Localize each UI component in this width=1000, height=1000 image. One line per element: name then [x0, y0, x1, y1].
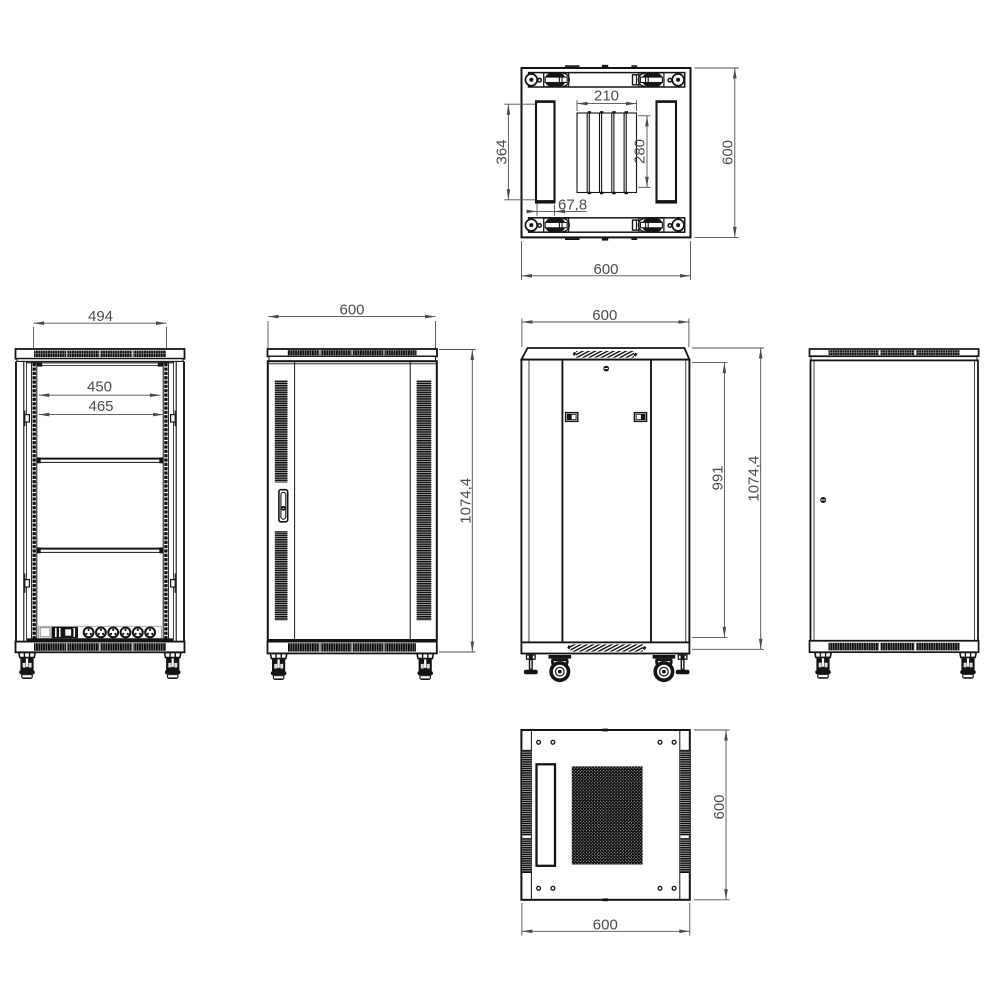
svg-text:465: 465	[88, 398, 113, 415]
svg-text:600: 600	[592, 307, 617, 324]
svg-text:600: 600	[593, 261, 618, 278]
svg-text:600: 600	[711, 794, 728, 819]
svg-text:280: 280	[632, 139, 649, 164]
svg-text:1074,4: 1074,4	[457, 478, 474, 524]
svg-text:494: 494	[88, 308, 113, 325]
svg-text:600: 600	[720, 140, 737, 165]
svg-text:210: 210	[594, 88, 619, 105]
svg-text:600: 600	[339, 301, 364, 318]
svg-text:364: 364	[493, 139, 510, 164]
svg-text:67,8: 67,8	[558, 197, 587, 214]
svg-text:991: 991	[709, 465, 726, 490]
svg-text:1074,4: 1074,4	[746, 456, 763, 502]
svg-text:600: 600	[593, 916, 618, 933]
svg-text:450: 450	[87, 379, 112, 396]
